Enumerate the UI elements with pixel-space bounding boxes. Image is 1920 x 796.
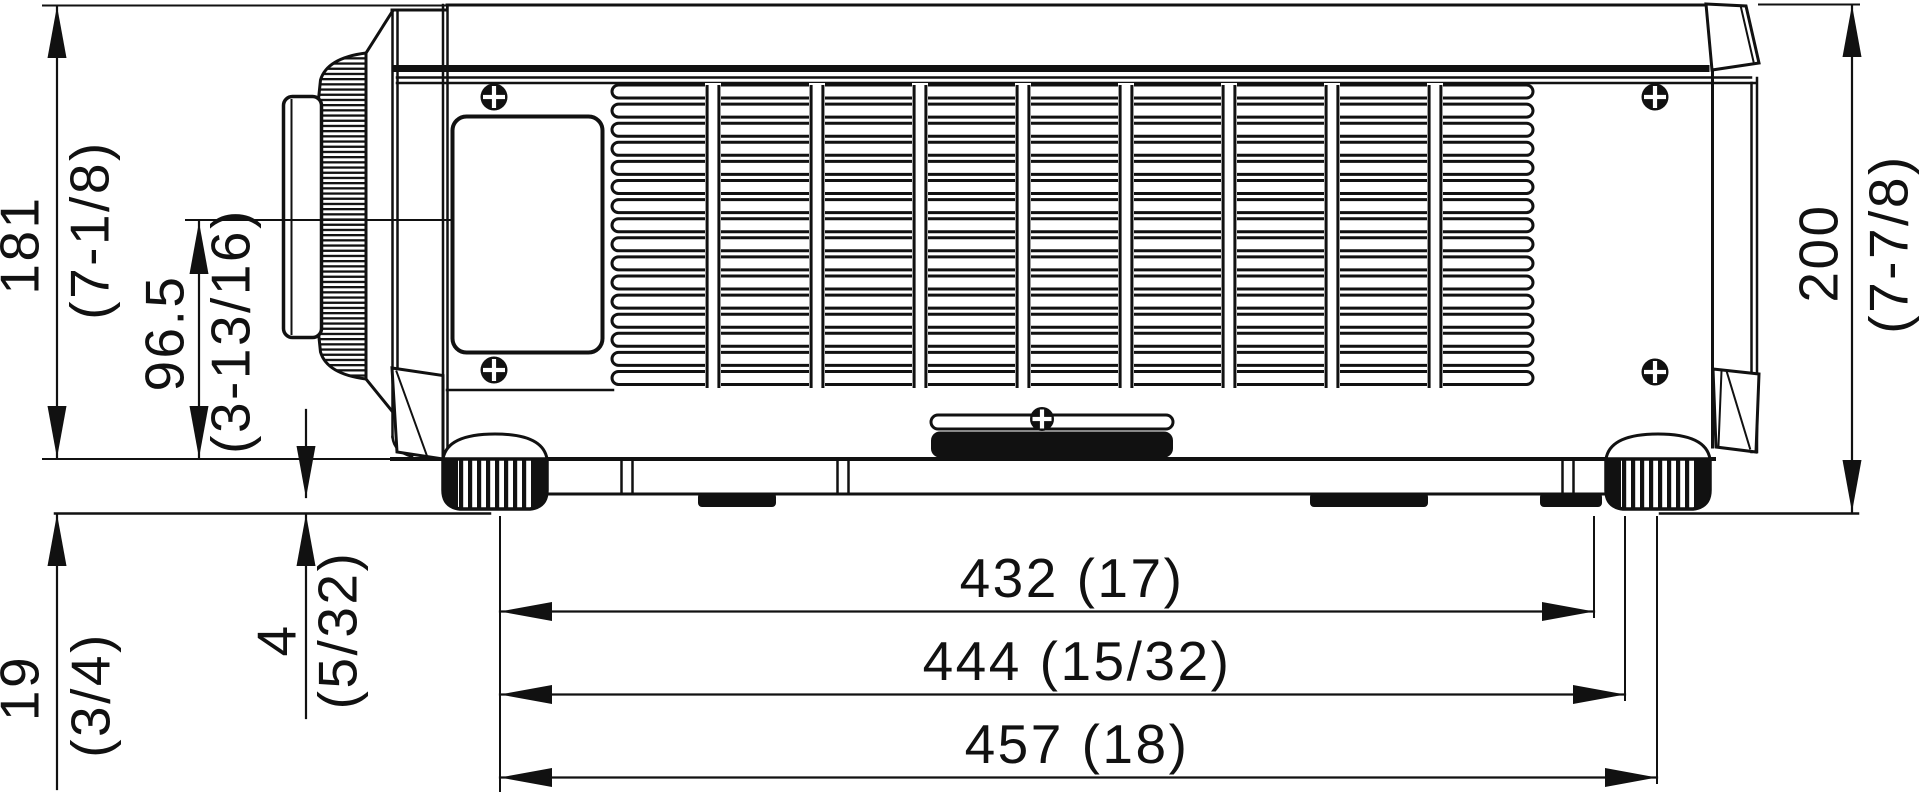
skirt-joint-2	[838, 461, 849, 494]
adjustable-foot-rear	[1606, 434, 1710, 510]
screw-head	[1030, 407, 1054, 431]
grille-slot	[612, 295, 1533, 308]
grille-divider-bar	[913, 85, 916, 388]
grille-divider-bar	[1119, 85, 1122, 388]
foot-knob	[443, 459, 547, 509]
bottom-pad-3	[1540, 493, 1602, 507]
grille-divider-bar	[717, 85, 720, 388]
grille-divider-bar	[1439, 85, 1442, 388]
lens-focus-ring	[318, 53, 366, 379]
dim-label-overall-height-inch: (7-7/8)	[1857, 154, 1919, 334]
grille-divider-bar	[1130, 85, 1133, 388]
grille-slot	[612, 276, 1533, 289]
screw-head	[481, 357, 508, 384]
lens-mount-top-line	[366, 12, 392, 53]
grille-divider-bar	[810, 85, 813, 388]
grille-divider-bar	[924, 85, 927, 388]
adjustable-foot-front	[443, 434, 547, 510]
arrowhead-down	[1843, 460, 1862, 512]
grille-divider-bar	[1233, 85, 1236, 388]
grille-slot	[612, 161, 1533, 174]
grille-slot	[612, 333, 1533, 346]
dim-label-body-height-mm: 181	[0, 195, 50, 294]
grille-slot	[612, 372, 1533, 385]
arrowhead-down	[297, 446, 316, 498]
grille-slot	[612, 85, 1533, 98]
grille-slot	[612, 181, 1533, 194]
grille-slot	[612, 352, 1533, 365]
grille-divider-bar	[1428, 85, 1431, 388]
arrowhead-right	[1605, 768, 1657, 787]
grille-slot	[612, 142, 1533, 155]
dim-label-body-depth: 444 (15/32)	[923, 630, 1232, 692]
arrowhead-left	[500, 602, 552, 621]
dim-label-clearance-mm: 4	[245, 623, 307, 656]
skirt-joint-1	[622, 461, 633, 494]
arrowhead-up	[1843, 5, 1862, 57]
arrowhead-up	[48, 6, 67, 58]
grille-slot	[612, 104, 1533, 117]
grille-slot	[612, 219, 1533, 232]
grille-divider-bar	[1222, 85, 1225, 388]
arrowhead-up	[48, 514, 67, 566]
bottom-pad-2	[1310, 493, 1428, 507]
bottom-pad-1	[698, 493, 776, 507]
screw-head	[481, 84, 508, 111]
projector-dimension-drawing: 432 (17) 444 (15/32) 457 (18) 181 (7-1/8…	[0, 0, 1920, 796]
dim-label-lens-center-mm: 96.5	[133, 274, 195, 391]
lens-front-barrel	[284, 97, 322, 338]
dim-label-foot-spacing: 432 (17)	[960, 547, 1185, 609]
bottom-cover-black-bar	[931, 432, 1173, 458]
screw-head	[1642, 84, 1669, 111]
grille-divider-bar	[1027, 85, 1030, 388]
arrowhead-down	[48, 406, 67, 458]
arrowhead-left	[500, 685, 552, 704]
underside	[547, 461, 1606, 507]
dim-label-body-height-inch: (7-1/8)	[58, 140, 120, 320]
grille-divider-bar	[706, 85, 709, 388]
arrowhead-right	[1573, 685, 1625, 704]
grille-divider-bar	[1336, 85, 1339, 388]
grille-slot	[612, 123, 1533, 136]
drawing-canvas: 432 (17) 444 (15/32) 457 (18) 181 (7-1/8…	[0, 0, 1920, 796]
dim-label-lens-center-inch: (3-13/16)	[199, 208, 261, 454]
exhaust-grille	[612, 83, 1533, 389]
lens-mount-bottom-line	[366, 379, 392, 411]
grille-divider-bar	[821, 85, 824, 388]
dim-label-foot-height-mm: 19	[0, 655, 50, 721]
front-access-panel	[453, 117, 603, 353]
dim-label-overall-depth: 457 (18)	[965, 713, 1190, 775]
corner-guard-top-rear	[1706, 4, 1759, 70]
arrowhead-left	[500, 768, 552, 787]
skirt-joint-3	[1563, 461, 1574, 494]
grille-divider-bar	[1325, 85, 1328, 388]
dim-label-clearance-inch: (5/32)	[306, 551, 368, 710]
dim-label-overall-height-mm: 200	[1787, 203, 1849, 302]
dim-label-foot-height-inch: (3/4)	[59, 632, 121, 758]
grille-slot	[612, 238, 1533, 251]
grille-slot	[612, 200, 1533, 213]
screw-head	[1642, 359, 1669, 386]
grille-divider-bar	[1016, 85, 1019, 388]
grille-slot	[612, 257, 1533, 270]
arrowhead-right	[1542, 602, 1594, 621]
foot-dome	[443, 434, 547, 459]
grille-slot	[612, 314, 1533, 327]
